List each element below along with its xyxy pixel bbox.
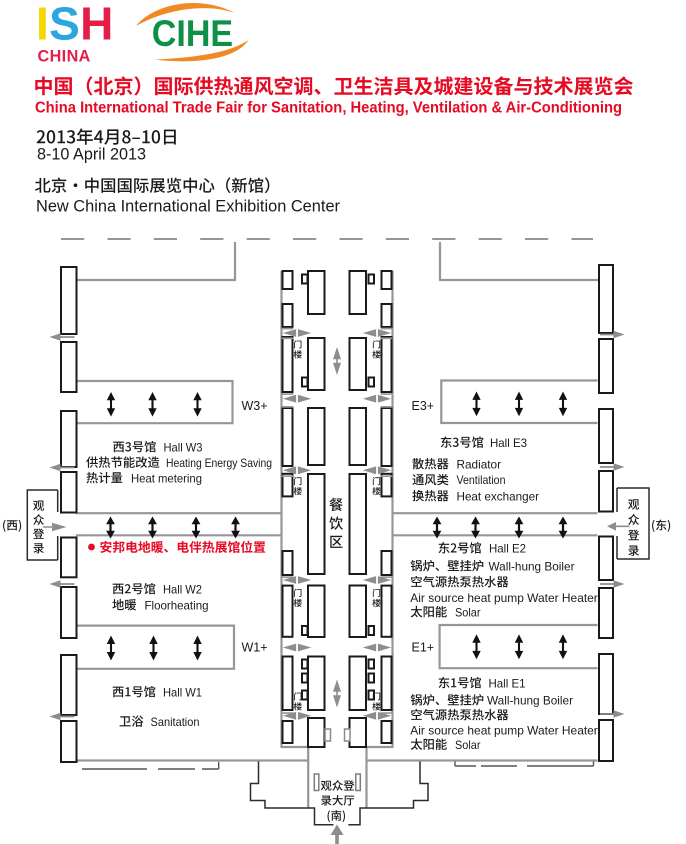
svg-text:Hall E1: Hall E1	[489, 676, 526, 690]
svg-text:Heat metering: Heat metering	[131, 471, 202, 485]
svg-text:W1+: W1+	[242, 641, 268, 655]
svg-text:Solar: Solar	[455, 605, 481, 619]
svg-text:Hall W1: Hall W1	[163, 685, 202, 699]
svg-text:CHINA: CHINA	[38, 48, 91, 66]
svg-text:Radiator: Radiator	[457, 457, 502, 471]
svg-text:8-10 April 2013: 8-10 April 2013	[37, 145, 146, 164]
svg-text:New China International Exhibi: New China International Exhibition Cente…	[36, 197, 340, 216]
svg-text:Wall-hung Boiler: Wall-hung Boiler	[487, 694, 573, 708]
svg-text:Ventilation: Ventilation	[457, 473, 506, 487]
svg-text:E3+: E3+	[412, 399, 435, 413]
svg-text:Wall-hung Boiler: Wall-hung Boiler	[489, 559, 575, 573]
svg-text:Heating Energy Saving: Heating Energy Saving	[166, 456, 272, 470]
svg-text:ISH: ISH	[36, 0, 114, 50]
svg-text:Hall E2: Hall E2	[489, 542, 526, 556]
svg-text:Solar: Solar	[455, 738, 481, 752]
svg-text:CIHE: CIHE	[152, 12, 233, 54]
svg-text:Hall W2: Hall W2	[163, 582, 202, 596]
svg-text:China International Trade Fair: China International Trade Fair for Sanit…	[35, 100, 622, 117]
svg-text:Floorheating: Floorheating	[145, 598, 209, 612]
svg-text:W3+: W3+	[242, 399, 268, 413]
svg-text:Hall E3: Hall E3	[490, 436, 527, 450]
svg-text:Air source heat pump Water Hea: Air source heat pump Water Heater	[410, 591, 598, 605]
svg-text:E1+: E1+	[412, 641, 435, 655]
svg-text:Heat exchanger: Heat exchanger	[457, 489, 540, 503]
svg-text:Hall W3: Hall W3	[164, 440, 203, 454]
svg-text:Sanitation: Sanitation	[151, 715, 200, 729]
svg-text:Air source heat pump Water Hea: Air source heat pump Water Heater	[410, 723, 598, 737]
